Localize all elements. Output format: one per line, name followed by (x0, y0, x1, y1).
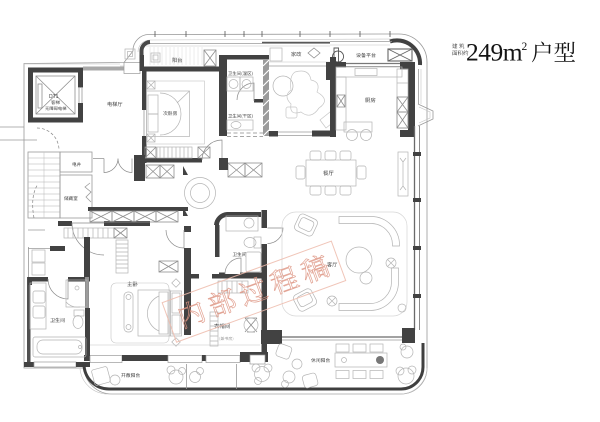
svg-text:2: 2 (522, 41, 528, 53)
svg-text:249m: 249m (466, 38, 523, 67)
svg-text:DT1: DT1 (49, 94, 59, 100)
